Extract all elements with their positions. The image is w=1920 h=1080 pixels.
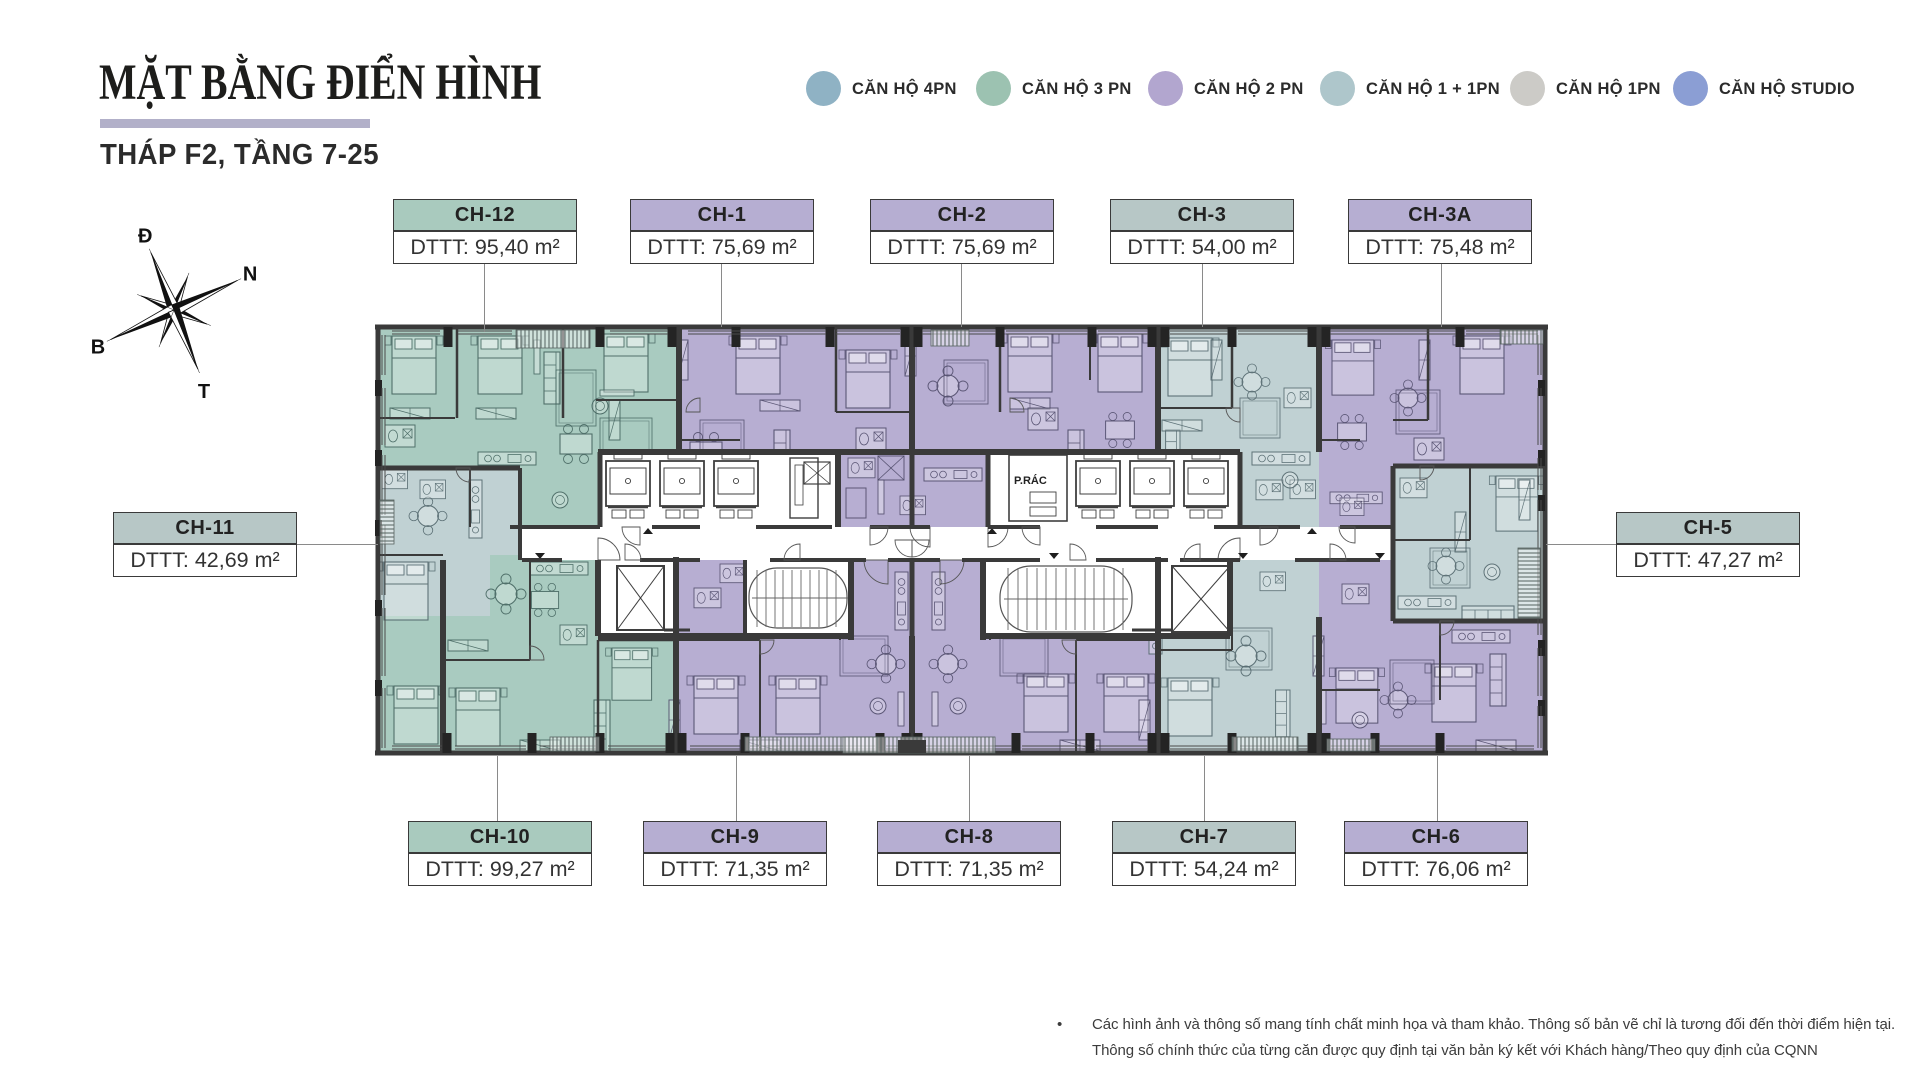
svg-text:T: T [198, 381, 210, 398]
svg-text:B: B [91, 337, 105, 359]
svg-text:N: N [243, 264, 257, 286]
svg-text:Đ: Đ [138, 228, 152, 248]
svg-text:P.RÁC: P.RÁC [1014, 474, 1047, 487]
